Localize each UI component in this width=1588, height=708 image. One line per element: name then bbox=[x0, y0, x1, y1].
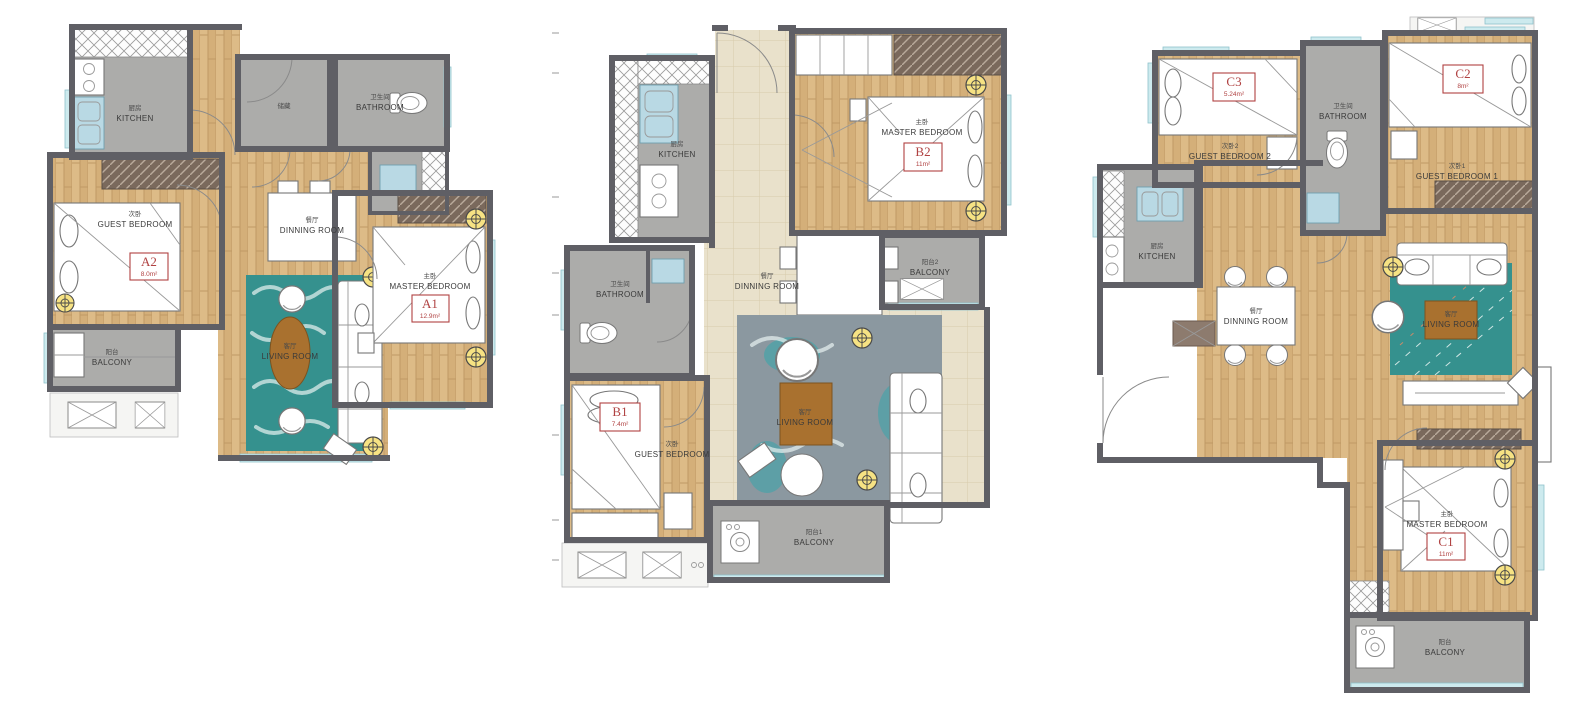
master-bedroom-label-en: MASTER BEDROOM bbox=[1406, 520, 1487, 529]
unit-area-c3-text: 5.24m² bbox=[1224, 91, 1245, 98]
floor-plan-b: 厨房 KITCHEN 主卧 MASTER BEDROOM B2 11m² 卫生间… bbox=[552, 15, 1020, 590]
guest-bedroom-label-cn: 次卧 bbox=[129, 209, 143, 218]
unit-code-b1-text: B1 bbox=[612, 404, 627, 419]
bay-window bbox=[1537, 367, 1551, 462]
balcony1-label-cn: 阳台1 bbox=[806, 527, 823, 536]
entry-door-c bbox=[1103, 377, 1169, 443]
tv-bench bbox=[1403, 381, 1518, 405]
unit-code-a2-text: A2 bbox=[141, 254, 157, 269]
closet bbox=[796, 35, 892, 75]
balcony2-b bbox=[900, 279, 943, 300]
kitchen-label-en: KITCHEN bbox=[116, 114, 153, 123]
dinning-room-label-en: DINNING ROOM bbox=[735, 282, 800, 291]
balcony2-label-cn: 阳台2 bbox=[922, 257, 939, 266]
nightstand bbox=[358, 333, 374, 353]
balcony-label-cn: 阳台 bbox=[106, 347, 119, 356]
dinning-room-label-cn: 餐厅 bbox=[306, 215, 320, 224]
balcony2-label-en: BALCONY bbox=[910, 268, 951, 277]
unit-code-a1: A1 12.9m² bbox=[412, 295, 449, 322]
bathroom-label-en: BATHROOM bbox=[596, 290, 644, 299]
unit-code-a2: A2 8.0m² bbox=[130, 253, 168, 280]
kitchen-label-cn: 厨房 bbox=[129, 103, 142, 112]
living-room-label-en: LIVING ROOM bbox=[1423, 320, 1480, 329]
master-bedroom-label-cn: 主卧 bbox=[1441, 509, 1455, 518]
storage-label-cn: 储藏 bbox=[278, 101, 292, 110]
unit-area-c1-text: 11m² bbox=[1439, 551, 1454, 558]
unit-code-b2: B2 11m² bbox=[904, 143, 942, 171]
stove-icon bbox=[640, 165, 678, 217]
master-bedroom-label-en: MASTER BEDROOM bbox=[389, 282, 470, 291]
guest-bedroom2-label-cn: 次卧2 bbox=[1222, 141, 1239, 150]
stove-icon bbox=[1100, 237, 1124, 283]
living-room-label-cn: 客厅 bbox=[1445, 309, 1459, 318]
unit-code-a1-text: A1 bbox=[422, 296, 438, 311]
dinning-room-label-cn: 餐厅 bbox=[1250, 306, 1264, 315]
master-bedroom-label-cn: 主卧 bbox=[424, 271, 438, 280]
bathroom-label-en: BATHROOM bbox=[1319, 112, 1367, 121]
unit-area-a2-text: 8.0m² bbox=[141, 271, 158, 278]
washing-machine-icon bbox=[1356, 626, 1394, 668]
living-room-label-en: LIVING ROOM bbox=[777, 418, 834, 427]
balcony-label-en: BALCONY bbox=[92, 358, 133, 367]
unit-code-c3-text: C3 bbox=[1226, 74, 1241, 89]
kitchen-label-en: KITCHEN bbox=[658, 150, 695, 159]
unit-code-c2-text: C2 bbox=[1455, 66, 1470, 81]
dinning-room-label-en: DINNING ROOM bbox=[280, 226, 345, 235]
unit-area-b1-text: 7.4m² bbox=[612, 421, 629, 428]
floor-plan-c: C3 5.24m² 次卧2 GUEST BEDROOM 2 卫生间 BATHRO… bbox=[1085, 15, 1555, 695]
living-room-a bbox=[246, 267, 383, 464]
unit-area-c2-text: 8m² bbox=[1457, 83, 1469, 90]
guest-bedroom2-label-en: GUEST BEDROOM 2 bbox=[1189, 152, 1271, 161]
wardrobe bbox=[1435, 181, 1535, 211]
guest-bedroom-label-cn: 次卧 bbox=[666, 439, 680, 448]
kitchen-sink-icon bbox=[74, 97, 104, 149]
balcony1-label-en: BALCONY bbox=[794, 538, 835, 547]
living-room-label-en: LIVING ROOM bbox=[262, 352, 319, 361]
washing-machine-icon bbox=[721, 521, 759, 563]
master-bedroom-label-cn: 主卧 bbox=[916, 117, 930, 126]
unit-code-c2: C2 8m² bbox=[1443, 65, 1483, 93]
stool bbox=[1403, 501, 1419, 521]
guest-bedroom-label-en: GUEST BEDROOM bbox=[635, 450, 710, 459]
floor-plan-a: 厨房 KITCHEN 储藏 卫生间 BATHROOM 次卧 GUEST BEDR… bbox=[40, 15, 500, 465]
kitchen-label-en: KITCHEN bbox=[1138, 252, 1175, 261]
bathroom-label-en: BATHROOM bbox=[356, 103, 404, 112]
guest-bedroom1-label-en: GUEST BEDROOM 1 bbox=[1416, 172, 1498, 181]
sofa bbox=[890, 373, 942, 523]
living-room-label-cn: 客厅 bbox=[799, 407, 813, 416]
unit-area-b2-text: 11m² bbox=[916, 161, 931, 168]
desk bbox=[572, 513, 658, 539]
round-table bbox=[781, 454, 823, 496]
ac-platform-b bbox=[562, 543, 708, 587]
desk bbox=[1383, 460, 1403, 550]
kitchen-sink-icon bbox=[1137, 187, 1183, 221]
unit-code-c3: C3 5.24m² bbox=[1213, 73, 1255, 101]
dinning-room-label-en: DINNING ROOM bbox=[1224, 317, 1289, 326]
balcony-label-en: BALCONY bbox=[1425, 648, 1466, 657]
unit-code-c1-text: C1 bbox=[1438, 534, 1453, 549]
kitchen-label-cn: 厨房 bbox=[671, 139, 684, 148]
floor-plan-sheet: 厨房 KITCHEN 储藏 卫生间 BATHROOM 次卧 GUEST BEDR… bbox=[0, 0, 1588, 708]
bathroom-label-cn: 卫生间 bbox=[370, 92, 390, 101]
kitchen-label-cn: 厨房 bbox=[1151, 241, 1164, 250]
living-room-label-cn: 客厅 bbox=[284, 341, 298, 350]
stove-icon bbox=[74, 59, 104, 95]
bathroom-label-cn: 卫生间 bbox=[1333, 101, 1353, 110]
unit-code-b1: B1 7.4m² bbox=[600, 403, 640, 431]
bathroom-label-cn: 卫生间 bbox=[610, 279, 630, 288]
living-room-b bbox=[737, 315, 942, 523]
nightstand bbox=[1391, 131, 1417, 159]
ac-platform-a bbox=[50, 393, 178, 437]
kitchen-sink-icon bbox=[640, 85, 678, 143]
unit-area-a1-text: 12.9m² bbox=[420, 313, 441, 320]
guest-bedroom1-label-cn: 次卧1 bbox=[1449, 161, 1466, 170]
unit-code-b2-text: B2 bbox=[915, 144, 930, 159]
dimension-ticks-b bbox=[552, 33, 559, 560]
balcony-label-cn: 阳台 bbox=[1439, 637, 1452, 646]
guest-bedroom-label-en: GUEST BEDROOM bbox=[98, 220, 173, 229]
dinning-room-label-cn: 餐厅 bbox=[761, 271, 775, 280]
master-bedroom-label-en: MASTER BEDROOM bbox=[881, 128, 962, 137]
unit-code-c1: C1 11m² bbox=[1427, 533, 1465, 560]
side-table bbox=[664, 493, 692, 529]
sofa bbox=[1397, 243, 1507, 285]
